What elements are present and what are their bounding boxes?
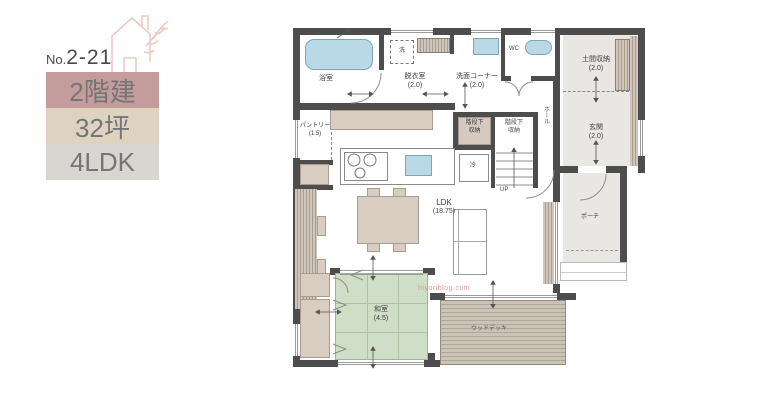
wall-genkan-left: [555, 28, 560, 123]
wall-wash-wc: [501, 28, 505, 80]
wall-dressing-wash: [450, 28, 454, 54]
label-pantry: パントリー(1.5): [299, 123, 331, 138]
floor-plan: 洗: [293, 28, 650, 376]
kitchen-back-counter: [330, 110, 433, 130]
wall-bath-dressing: [379, 28, 384, 70]
watermark: hiyoriblog.com: [418, 285, 470, 292]
washitsu-closet-upper: [300, 273, 330, 297]
plan-number-value: 2-21: [66, 46, 112, 69]
label-porch: ポーチ: [581, 214, 599, 222]
window-right-genkan: [638, 120, 645, 156]
window-top-3: [531, 28, 555, 35]
porch-step: [560, 262, 627, 281]
badge-stories-label: 2階建: [69, 72, 135, 109]
label-wash-corner: 洗面コーナー(2.0): [453, 73, 501, 91]
dining-table: [357, 196, 419, 244]
dressing-shelf: [417, 38, 450, 53]
post-deck-right: [566, 293, 576, 300]
label-stair-storage-left: 階段下収納: [458, 120, 491, 135]
porch-dashed-line: [566, 250, 618, 251]
window-left-washitsu: [293, 324, 300, 356]
genkan-side-shelf: [630, 36, 638, 166]
label-stair-storage-right: 階段下収納: [496, 120, 532, 135]
window-washitsu-south: [338, 360, 424, 367]
label-fridge: 冷: [470, 163, 476, 171]
washitsu-closet-lower: [300, 299, 330, 358]
window-ldk-deck-doors: [445, 293, 557, 300]
stairs: [496, 153, 533, 185]
plan-number-prefix: No.: [46, 52, 66, 67]
bathtub: [305, 39, 373, 70]
stove: [344, 152, 388, 181]
dining-chair-3: [367, 243, 380, 252]
sofa: [453, 209, 487, 275]
hall-ldk-door-arc: [526, 170, 554, 198]
washbasin: [473, 38, 499, 55]
label-doma-storage: 土間収納(2.0): [571, 56, 621, 74]
door-gap-porch: [578, 166, 606, 173]
toilet: [525, 40, 552, 55]
kitchen-side-cabinet: [300, 164, 329, 185]
wall-stairbox-right: [533, 112, 538, 188]
wall-stairbox-mid: [491, 112, 495, 188]
wall-bath-bottom: [293, 103, 455, 110]
wall-storage-bottom: [453, 145, 495, 150]
wall-top: [293, 28, 645, 35]
label-hall: ホール: [541, 106, 549, 124]
tv-board-tab-1: [317, 216, 326, 236]
badge-stories: 2階建: [46, 72, 159, 108]
label-bath: 浴室: [319, 75, 333, 84]
wall-porch-right: [620, 166, 627, 263]
washing-machine-label: 洗: [399, 48, 405, 56]
label-dressing: 脱衣室(2.0): [393, 73, 437, 91]
doma-genkan-divider: [563, 91, 629, 92]
badge-layout: 4LDK: [46, 144, 159, 180]
label-washitsu: 和室(4.5): [359, 306, 403, 324]
label-ldk: LDK(18.75): [421, 198, 467, 217]
badge-layout-label: 4LDK: [70, 147, 135, 178]
window-top-1: [391, 28, 433, 35]
ldk-right-shutter: [543, 202, 554, 284]
badge-area-label: 32坪: [75, 108, 130, 145]
label-up: UP: [500, 187, 508, 195]
window-top-2: [471, 28, 501, 35]
bath-door-arc: [351, 73, 381, 103]
post-deck-left: [430, 293, 440, 300]
badge-area: 32坪: [46, 108, 159, 144]
washitsu-sliding-track: [340, 270, 423, 275]
screenshot-root: { "panel": { "number_prefix": "No.", "nu…: [0, 0, 768, 403]
label-genkan: 玄関(2.0): [571, 124, 621, 142]
hall-double-door-left: [505, 82, 519, 96]
wall-wc-bottom-a: [501, 76, 511, 81]
label-wc: WC: [509, 46, 519, 54]
kitchen-sink: [405, 155, 432, 176]
label-wood-deck: ウッドデッキ: [471, 326, 507, 334]
dining-chair-4: [393, 243, 406, 252]
hall-double-door-right: [519, 82, 533, 96]
washing-machine: 洗: [390, 40, 414, 64]
window-ldk-right: [553, 202, 560, 284]
plan-number: No.2-21: [46, 46, 112, 70]
